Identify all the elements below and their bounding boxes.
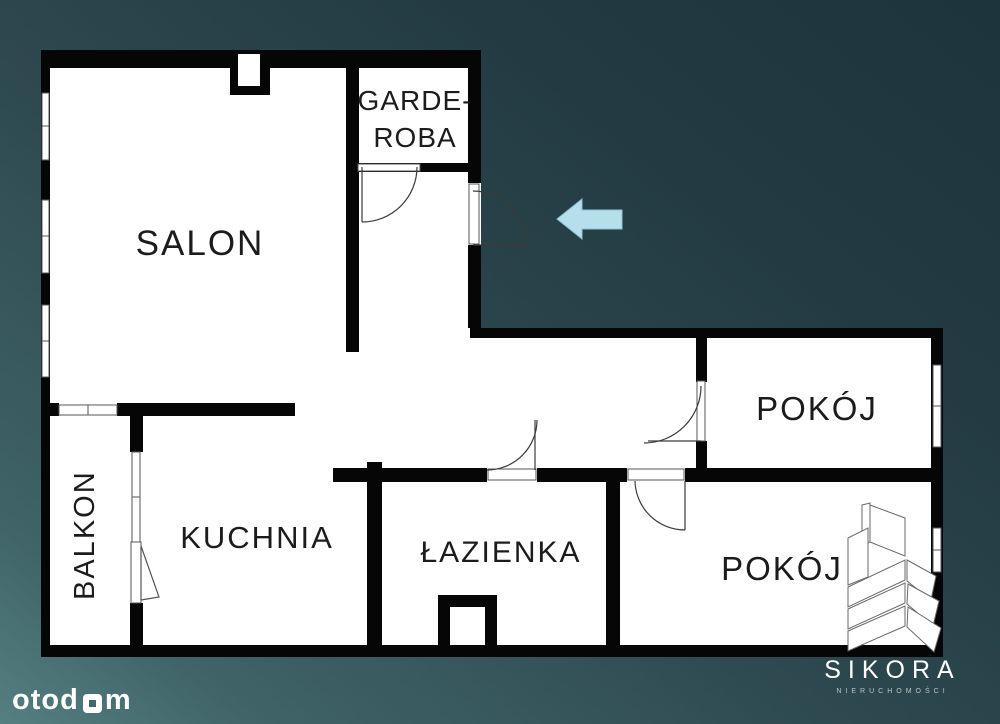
room-label-salon: SALON xyxy=(95,224,305,264)
wall xyxy=(41,50,50,657)
wall xyxy=(685,468,943,482)
sikora-logo-subtitle: NIERUCHOMOŚCI xyxy=(800,688,985,695)
wall xyxy=(130,403,143,452)
room-label-pokoj-bottom: POKÓJ xyxy=(677,550,887,588)
wall xyxy=(130,603,143,647)
wall xyxy=(470,328,943,338)
wall xyxy=(696,441,707,468)
otodom-square-o-icon xyxy=(83,694,102,713)
entrance-arrow-icon xyxy=(557,199,622,239)
wall xyxy=(468,245,481,328)
room-label-pokoj-top: POKÓJ xyxy=(712,390,922,428)
wall xyxy=(606,480,620,647)
entrance-door-arc xyxy=(473,191,527,245)
otodom-logo: otod m xyxy=(12,684,132,717)
room-label-balkon: BALKON xyxy=(53,450,117,620)
room-label-lazienka: ŁAZIENKA xyxy=(396,536,606,570)
wall xyxy=(696,338,707,382)
wall xyxy=(50,403,59,416)
chimney-niche-pocket xyxy=(238,54,260,86)
room-label-garderoba-line2: ROBA xyxy=(350,119,480,156)
wall xyxy=(117,403,125,416)
wall xyxy=(333,468,487,482)
otodom-logo-text-right: m xyxy=(105,684,132,717)
wall xyxy=(346,163,480,172)
wall xyxy=(367,462,382,647)
sikora-logo: SIKORA NIERUCHOMOŚCI xyxy=(800,656,985,695)
wall xyxy=(931,328,943,657)
floor-plan-image: SALON GARDE- ROBA BALKON KUCHNIA ŁAZIENK… xyxy=(0,0,1000,724)
otodom-logo-text-left: otod xyxy=(12,684,79,717)
room-label-garderoba-line1: GARDE- xyxy=(350,82,480,119)
room-label-kuchnia: KUCHNIA xyxy=(152,520,362,556)
room-label-garderoba: GARDE- ROBA xyxy=(350,82,480,156)
duct-niche-pocket xyxy=(450,607,485,645)
sikora-logo-name: SIKORA xyxy=(800,656,985,685)
wall xyxy=(125,403,295,416)
